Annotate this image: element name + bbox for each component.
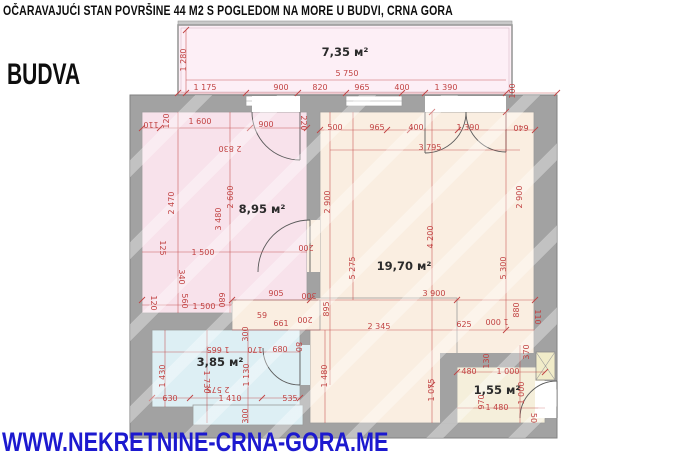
city-label: BUDVA (7, 58, 80, 92)
hall-floor (310, 298, 457, 423)
bathroom-floor (152, 330, 300, 407)
website-watermark: WWW.NEKRETNINE-CRNA-GORA.ME (2, 427, 388, 458)
page-title: OČARAVAJUĆI STAN POVRŠINE 44 M2 S POGLED… (3, 3, 453, 18)
floorplan-drawing (0, 0, 688, 460)
screenshot-root: 1 2805 7501 1759008209654001 39010011012… (0, 0, 688, 460)
corridor-floor (232, 300, 320, 330)
entry-floor (457, 367, 545, 423)
shaft (536, 352, 555, 380)
bedroom-floor (142, 112, 307, 313)
balcony (178, 21, 512, 95)
room-floors (142, 112, 545, 425)
